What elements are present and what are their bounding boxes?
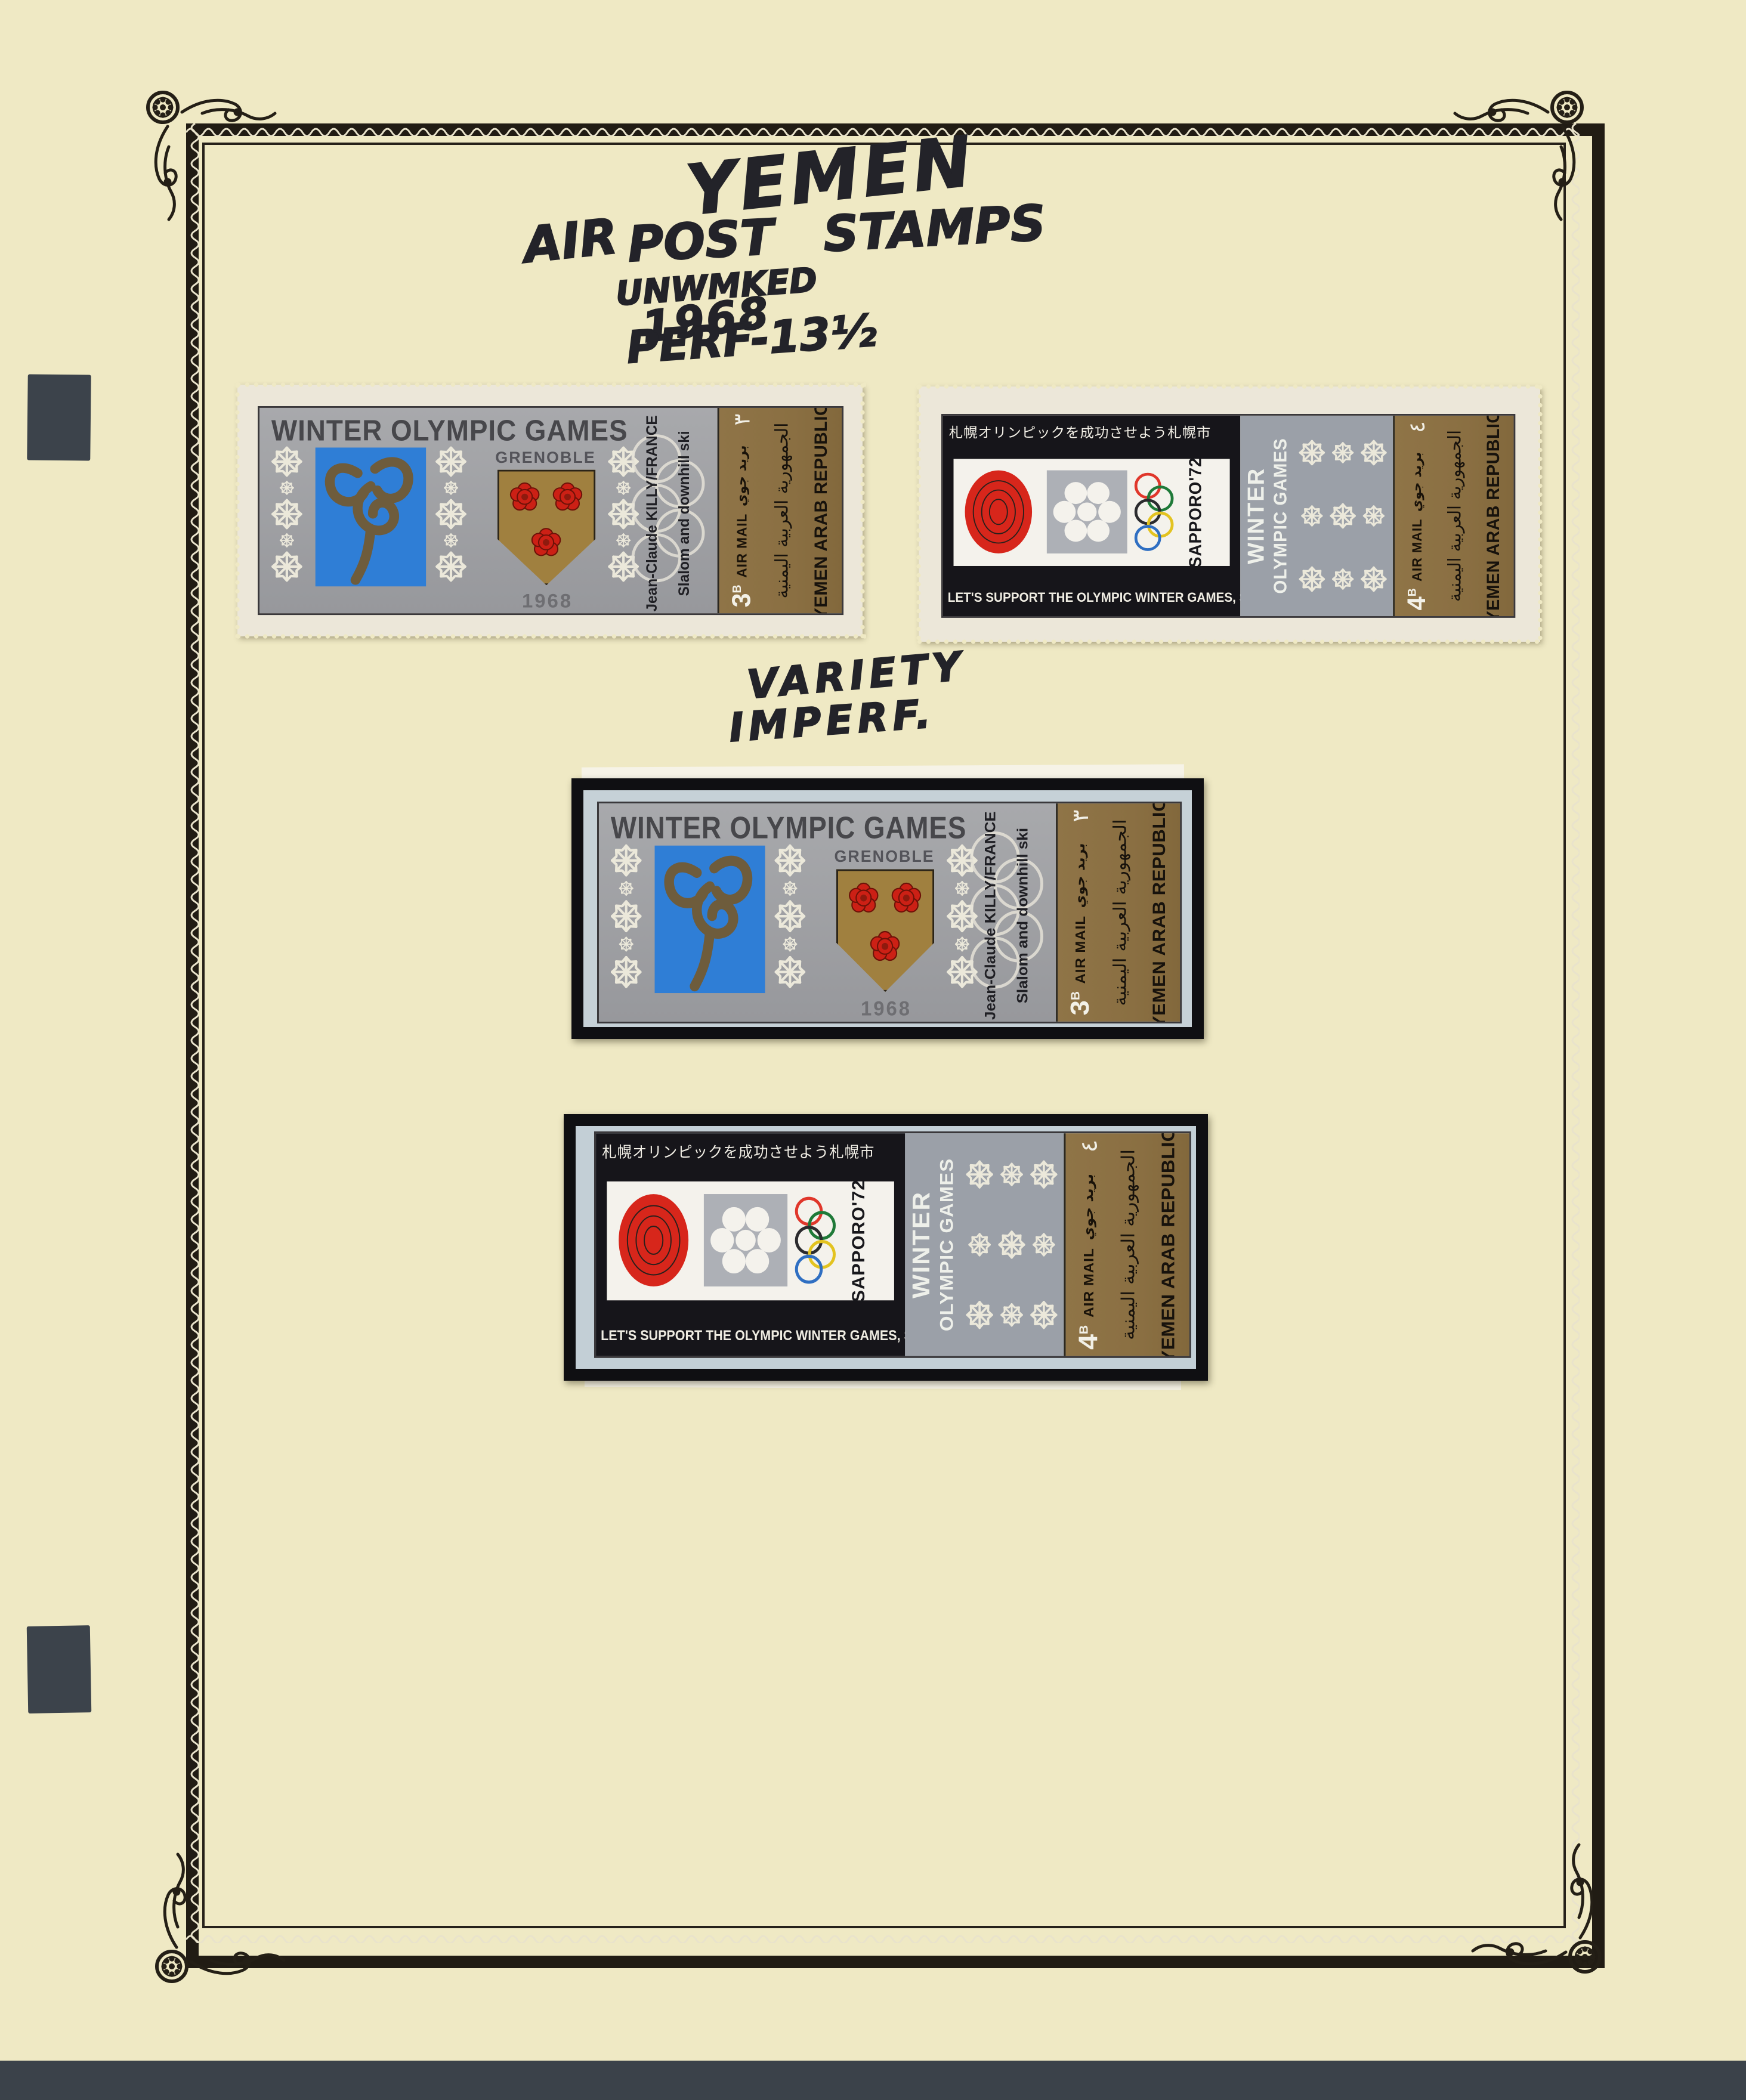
snowflake-icon xyxy=(782,936,798,952)
corner-flourish-icon xyxy=(145,89,300,245)
perforation-edge xyxy=(916,383,922,645)
olympic-rings-icon xyxy=(1133,466,1176,558)
snowflake-icon xyxy=(610,955,643,989)
event-name: SAPPORO'72 xyxy=(1186,457,1206,567)
perforation-edge xyxy=(860,381,866,640)
snowflake-icon xyxy=(1362,505,1386,527)
snow-crystal-panel xyxy=(704,1194,787,1286)
event-label: SAPPORO'72 xyxy=(1186,463,1205,561)
country-panel: 4B AIR MAIL بريد جوي ٤ الجمهورية العربية… xyxy=(1393,416,1515,616)
rose-icon xyxy=(890,882,923,916)
country-arabic-line: الجمهورية العربية اليمنية xyxy=(1103,810,1138,1016)
sapporo-gray-panel: WINTER OLYMPIC GAMES xyxy=(1240,416,1393,616)
year-label: 1968 xyxy=(835,997,937,1020)
border-wave-right xyxy=(1567,123,1580,1943)
stamp-title: WINTER OLYMPIC GAMES xyxy=(611,810,966,846)
snowflake-grid xyxy=(963,1140,1061,1350)
airmail-arabic-label: بريد جوي xyxy=(1081,1174,1096,1240)
sapporo-gray-panel: WINTER OLYMPIC GAMES xyxy=(905,1133,1064,1356)
grenoble-design-imperf: WINTER OLYMPIC GAMES xyxy=(597,802,1182,1023)
snowflake-icon xyxy=(279,533,295,548)
snowflake-icon xyxy=(619,936,634,952)
snowflake-column xyxy=(429,446,472,583)
stamp-design-sapporo: 札幌オリンピックを成功させよう札幌市 xyxy=(941,414,1515,618)
rising-sun-icon xyxy=(611,1186,697,1294)
athlete-label: Jean-Claude KILLY/FRANCE xyxy=(644,416,660,611)
denomination-arabic: ٣ xyxy=(731,414,753,426)
title-vertical-line1: WINTER xyxy=(908,1139,934,1351)
snowflake-icon xyxy=(968,1232,992,1257)
title-vertical-line2: OLYMPIC GAMES xyxy=(937,1139,957,1351)
perforation-edge xyxy=(234,382,866,388)
english-slogan: LET'S SUPPORT THE OLYMPIC WINTER GAMES, … xyxy=(948,590,1213,605)
city-label: GRENOBLE xyxy=(489,449,602,466)
snowflake-icon xyxy=(1329,502,1357,530)
airmail-label: AIR MAIL xyxy=(1080,1248,1096,1317)
value-airmail-line: 4B AIR MAIL بريد جوي ٤ xyxy=(1072,1140,1106,1350)
denomination: 3B xyxy=(1067,991,1093,1015)
snowflake-icon xyxy=(1030,1159,1059,1190)
english-slogan: LET'S SUPPORT THE OLYMPIC WINTER GAMES, … xyxy=(601,1327,876,1344)
airmail-arabic-label: بريد جوي xyxy=(1410,452,1424,512)
olympic-rings-icon xyxy=(793,1189,838,1292)
silver-field: WINTER OLYMPIC GAMES xyxy=(599,803,1057,1022)
sapporo-black-panel: 札幌オリンピックを成功させよう札幌市 xyxy=(943,416,1240,616)
country-arabic-line: الجمهورية العربية اليمنية xyxy=(764,414,799,608)
snowflake-icon xyxy=(1032,1232,1056,1257)
denomination: 3B xyxy=(729,584,755,607)
snowflake-icon xyxy=(1331,441,1355,464)
country-arabic: الجمهورية العربية اليمنية xyxy=(1445,430,1465,602)
sapporo-black-panel: 札幌オリンピックを成功させよう札幌市 xyxy=(596,1133,905,1356)
airmail-arabic-label: بريد جوي xyxy=(734,445,750,506)
snowflake-icon xyxy=(1331,568,1355,590)
sapporo-emblem-panel: SAPPORO'72 xyxy=(954,459,1230,566)
corner-flourish-icon xyxy=(1430,89,1585,245)
snowflake-icon xyxy=(619,880,634,896)
country-english-line: YEMEN ARAB REPUBLIC xyxy=(1476,421,1512,611)
country-english-line: YEMEN ARAB REPUBLIC xyxy=(804,414,839,609)
snowflake-icon xyxy=(1000,1162,1024,1187)
snowflake-icon xyxy=(965,1300,994,1330)
denomination-arabic: ٤ xyxy=(1077,1140,1101,1153)
grenoble-coat-of-arms xyxy=(836,869,934,992)
stamp-design-grenoble: WINTER OLYMPIC GAMES xyxy=(597,802,1182,1023)
snowflake-icon xyxy=(782,880,798,896)
title-vertical-line2: OLYMPIC GAMES xyxy=(1271,420,1290,612)
snowflake-icon xyxy=(1298,565,1326,593)
grenoble-design-perf: WINTER OLYMPIC GAMES xyxy=(258,406,843,615)
perforation-edge xyxy=(234,381,240,640)
rising-sun-icon xyxy=(958,463,1041,560)
album-page: YEMEN AIR POST STAMPS UNWMKED 1968 PERF-… xyxy=(0,0,1746,2061)
stamp-design-sapporo: 札幌オリンピックを成功させよう札幌市 xyxy=(594,1131,1191,1358)
denomination-arabic: ٣ xyxy=(1069,810,1092,822)
title-words: OLYMPIC GAMES xyxy=(936,1158,958,1331)
airmail-label: AIR MAIL xyxy=(734,514,750,578)
silver-field: WINTER OLYMPIC GAMES xyxy=(259,408,719,613)
snowflake-icon xyxy=(270,550,304,583)
sapporo-snowflake-icon xyxy=(704,1194,787,1286)
sapporo-design-perf: 札幌オリンピックを成功させよう札幌市 xyxy=(941,414,1515,618)
corner-flourish-icon xyxy=(1448,1820,1603,1975)
snowflake-icon xyxy=(279,480,295,495)
rose-icon xyxy=(508,481,542,514)
snowflake-icon xyxy=(610,843,643,878)
japanese-slogan: 札幌オリンピックを成功させよう札幌市 xyxy=(949,421,1236,441)
snowflake-icon xyxy=(1298,439,1326,466)
rose-icon xyxy=(847,882,880,916)
value-airmail-line: 4B AIR MAIL بريد جوي ٤ xyxy=(1401,421,1433,610)
country-arabic: الجمهورية العربية اليمنية xyxy=(771,423,792,599)
country-name: YEMEN ARAB REPUBLIC xyxy=(811,406,832,615)
rose-icon xyxy=(869,930,902,964)
grenoble-rose-emblem-icon xyxy=(655,846,765,993)
snowflake-icon xyxy=(610,899,643,933)
binder-tab xyxy=(27,1625,92,1714)
snowflake-icon xyxy=(434,550,468,583)
olympic-rings-icon xyxy=(966,810,1053,1016)
country-arabic-line: الجمهورية العربية اليمنية xyxy=(1111,1140,1146,1350)
event-label: SAPPORO'72 xyxy=(849,1186,869,1295)
denomination-arabic: ٤ xyxy=(1406,421,1428,433)
title-word: WINTER xyxy=(908,1191,935,1298)
grenoble-emblem-panel xyxy=(655,846,765,993)
handwritten-air: AIR xyxy=(521,212,620,271)
rose-icon xyxy=(551,481,585,514)
perforation-edge xyxy=(234,633,866,639)
city-label: GRENOBLE xyxy=(828,847,941,866)
country-arabic: الجمهورية العربية اليمنية xyxy=(1110,819,1130,1006)
snowflake-icon xyxy=(443,533,459,548)
event-label: Slalom and downhill ski xyxy=(676,416,693,611)
title-word: WINTER xyxy=(1243,468,1269,564)
sapporo-design-imperf: 札幌オリンピックを成功させよう札幌市 xyxy=(594,1131,1191,1358)
olympic-rings-icon xyxy=(627,414,715,608)
country-panel: 3B AIR MAIL بريد جوي ٣ الجمهورية العربية… xyxy=(1056,803,1182,1022)
snowflake-icon xyxy=(1000,1302,1024,1327)
perforation-edge xyxy=(1537,383,1543,645)
snowflake-icon xyxy=(434,446,468,478)
snowflake-icon xyxy=(270,498,304,531)
snowflake-icon xyxy=(443,480,459,495)
snowflake-icon xyxy=(774,955,807,989)
country-panel: 3B AIR MAIL بريد جوي ٣ الجمهورية العربية… xyxy=(718,408,843,613)
event-label: Slalom and downhill ski xyxy=(1014,812,1031,1019)
perforation-edge xyxy=(915,383,1544,389)
athlete-name: Jean-Claude KILLY/FRANCE xyxy=(982,811,999,1020)
athlete-label: Jean-Claude KILLY/FRANCE xyxy=(982,812,999,1019)
event-name: Slalom and downhill ski xyxy=(1014,828,1031,1003)
airmail-label: AIR MAIL xyxy=(1072,916,1088,984)
country-name: YEMEN ARAB REPUBLIC xyxy=(1149,802,1170,1023)
country-english-line: YEMEN ARAB REPUBLIC xyxy=(1142,810,1178,1017)
stamp-design-grenoble: WINTER OLYMPIC GAMES xyxy=(258,406,843,615)
title-vertical-line1: WINTER xyxy=(1244,420,1268,612)
album-scan: { "handwriting": { "country": "YEMEN", "… xyxy=(0,0,1746,2100)
country-english-line: YEMEN ARAB REPUBLIC xyxy=(1151,1140,1187,1351)
snowflake-column xyxy=(265,446,308,583)
stamp-title: WINTER OLYMPIC GAMES xyxy=(271,414,628,448)
snowflake-icon xyxy=(1360,439,1388,466)
denomination: 4B xyxy=(1404,588,1430,610)
event-name: SAPPORO'72 xyxy=(849,1180,869,1303)
country-panel: 4B AIR MAIL بريد جوي ٤ الجمهورية العربية… xyxy=(1064,1133,1191,1356)
sapporo-snowflake-icon xyxy=(1047,471,1127,553)
snowflake-icon xyxy=(965,1159,994,1190)
grenoble-emblem-panel xyxy=(316,447,426,586)
snow-crystal-panel xyxy=(1047,471,1127,553)
athlete-name: Jean-Claude KILLY/FRANCE xyxy=(644,415,661,611)
snowflake-column xyxy=(769,843,812,989)
grenoble-coat-of-arms xyxy=(497,470,596,586)
rose-icon xyxy=(530,527,563,559)
snowflake-icon xyxy=(997,1229,1027,1260)
value-airmail-line: 3B AIR MAIL بريد جوي ٣ xyxy=(725,414,759,608)
snowflake-icon xyxy=(774,899,807,933)
event-name: Slalom and downhill ski xyxy=(675,431,693,596)
snowflake-icon xyxy=(1360,565,1388,593)
country-name: YEMEN ARAB REPUBLIC xyxy=(1158,1131,1179,1358)
snowflake-column xyxy=(605,843,648,989)
snowflake-icon xyxy=(270,446,304,478)
year-label: 1968 xyxy=(496,590,598,612)
airmail-label: AIR MAIL xyxy=(1409,519,1424,582)
airmail-arabic-label: بريد جوي xyxy=(1073,843,1088,908)
snowflake-icon xyxy=(774,843,807,878)
border-wave-left xyxy=(186,123,199,1943)
snowflake-grid xyxy=(1296,421,1389,610)
title-words: OLYMPIC GAMES xyxy=(1270,438,1291,593)
grenoble-rose-emblem-icon xyxy=(316,447,426,586)
country-arabic-line: الجمهورية العربية اليمنية xyxy=(1438,421,1472,610)
border-wave-bottom xyxy=(186,1931,1580,1943)
japanese-slogan: 札幌オリンピックを成功させよう札幌市 xyxy=(602,1140,900,1162)
binder-tab xyxy=(27,374,91,460)
country-name: YEMEN ARAB REPUBLIC xyxy=(1484,414,1504,618)
denomination: 4B xyxy=(1076,1325,1102,1350)
snowflake-icon xyxy=(1030,1300,1059,1330)
snowflake-icon xyxy=(1300,505,1323,527)
corner-flourish-icon xyxy=(154,1829,309,1984)
country-arabic: الجمهورية العربية اليمنية xyxy=(1117,1149,1139,1340)
value-airmail-line: 3B AIR MAIL بريد جوي ٣ xyxy=(1064,810,1097,1016)
snowflake-icon xyxy=(434,498,468,531)
sapporo-emblem-panel: SAPPORO'72 xyxy=(607,1182,894,1300)
perforation-edge xyxy=(915,639,1544,645)
